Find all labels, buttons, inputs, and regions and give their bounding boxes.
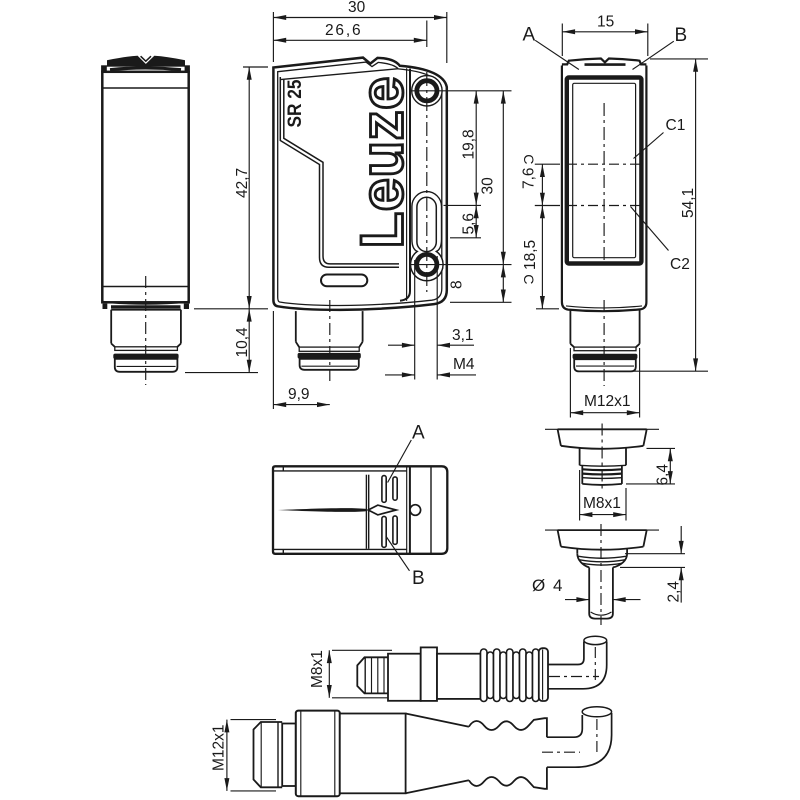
svg-text:7,6: 7,6: [521, 167, 538, 189]
svg-text:10,4: 10,4: [234, 327, 251, 358]
svg-text:8: 8: [449, 280, 466, 289]
svg-text:M4: M4: [453, 356, 475, 373]
svg-text:26,6: 26,6: [325, 22, 362, 39]
svg-text:15: 15: [597, 14, 614, 31]
svg-text:M8x1: M8x1: [583, 495, 621, 512]
svg-text:54,1: 54,1: [680, 188, 697, 218]
svg-text:Ø 4: Ø 4: [532, 576, 564, 595]
svg-text:SR 25: SR 25: [284, 79, 306, 127]
svg-text:5,6: 5,6: [461, 213, 478, 235]
svg-text:C1: C1: [666, 117, 686, 134]
svg-text:B: B: [675, 25, 688, 46]
svg-text:Leuze: Leuze: [349, 76, 416, 249]
svg-text:A: A: [412, 423, 425, 444]
svg-text:3,1: 3,1: [452, 327, 474, 344]
svg-text:M12x1: M12x1: [211, 724, 228, 771]
svg-text:C: C: [521, 154, 537, 164]
svg-text:19,8: 19,8: [461, 129, 478, 159]
svg-text:M12x1: M12x1: [584, 393, 631, 410]
svg-text:18,5: 18,5: [522, 240, 539, 270]
svg-text:C2: C2: [670, 256, 690, 273]
svg-text:9,9: 9,9: [288, 386, 310, 403]
svg-text:2,4: 2,4: [665, 581, 682, 603]
svg-text:A: A: [523, 25, 536, 46]
svg-text:M8x1: M8x1: [309, 650, 326, 688]
svg-text:6,4: 6,4: [655, 464, 672, 486]
svg-text:30: 30: [480, 177, 497, 195]
svg-text:30: 30: [348, 0, 366, 16]
svg-text:C: C: [521, 274, 537, 284]
svg-text:B: B: [412, 568, 425, 589]
svg-text:42,7: 42,7: [234, 168, 251, 198]
